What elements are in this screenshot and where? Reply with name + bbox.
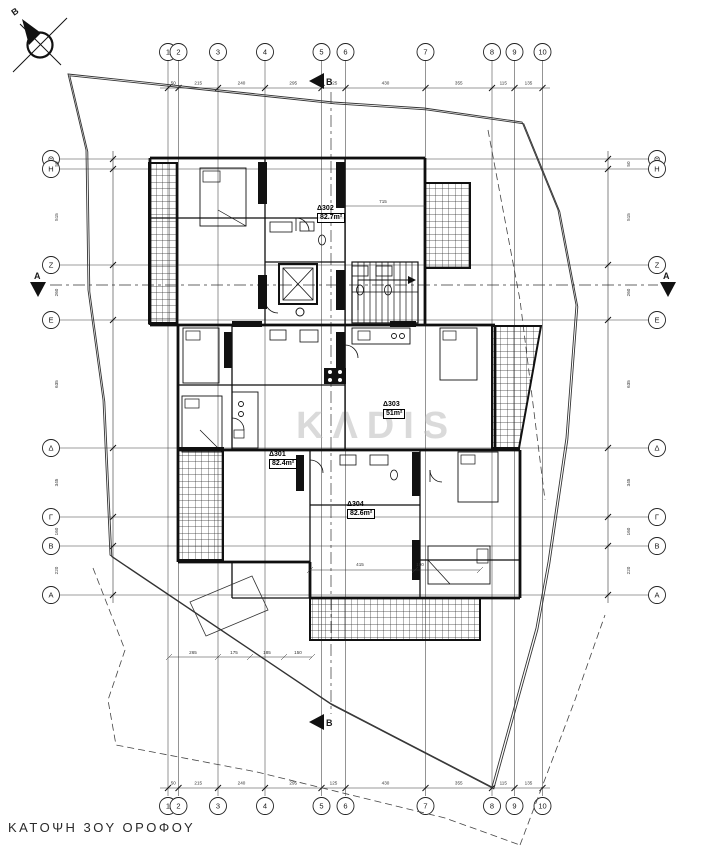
dim-value-right-5: 160: [626, 527, 631, 535]
dim-value-right-0: 50: [626, 161, 631, 167]
grid-bubble-label-bottom-1: 1: [166, 802, 170, 811]
grid-bubble-label-right-Ε: Ε: [654, 316, 659, 325]
grid-bubble-label-bottom-4: 4: [263, 802, 267, 811]
north-label: B: [9, 5, 20, 17]
bed: [182, 396, 222, 452]
dim-value-right-6: 220: [626, 566, 631, 574]
grid-bubble-label-top-5: 5: [319, 48, 323, 57]
grid-bubble-label-bottom-6: 6: [343, 802, 347, 811]
inner-dim-150: 150: [294, 650, 302, 655]
grid-bubble-label-top-4: 4: [263, 48, 267, 57]
section-marker-b-top: B: [309, 73, 333, 89]
apartment-area: 82.6m²: [347, 509, 375, 519]
grid-bubble-label-right-Γ: Γ: [655, 513, 659, 522]
dim-value-bottom-4: 125: [330, 781, 338, 786]
grid-bubble-label-left-Γ: Γ: [49, 513, 53, 522]
dim-value-left-5: 160: [54, 527, 59, 535]
apartment-label-d301: Δ301 82.4m²: [269, 451, 297, 469]
dim-value-left-2: 260: [54, 288, 59, 296]
grid-bubble-label-right-Β: Β: [654, 542, 659, 551]
apartment-label-d302: Δ302 82.7m²: [317, 205, 345, 223]
wall-fill-segments: [224, 162, 420, 580]
wheelchair-symbol: [296, 308, 304, 316]
grid-bubble-label-top-2: 2: [176, 48, 180, 57]
elevator: [279, 264, 317, 304]
dim-value-top-7: 115: [500, 81, 508, 86]
apartment-area: 82.4m²: [269, 459, 297, 469]
balcony-south: [310, 598, 480, 640]
apartment-id: Δ302: [317, 205, 345, 213]
dim-value-right-3: 635: [626, 380, 631, 388]
grid-bubble-label-top-10: 10: [538, 48, 546, 57]
dim-value-top-2: 240: [238, 81, 246, 86]
balcony-west: [149, 163, 177, 323]
grid-bubble-label-top-8: 8: [490, 48, 494, 57]
ramp-outline: [190, 576, 268, 636]
grid-bubble-label-left-Δ: Δ: [48, 444, 53, 453]
grid-bubble-label-top-1: 1: [166, 48, 170, 57]
north-arrow: B: [9, 5, 67, 72]
bed: [428, 546, 490, 584]
watermark: KΛDIS: [296, 405, 457, 447]
dim-value-bottom-5: 430: [382, 781, 390, 786]
inner-dim-715: 715: [379, 199, 387, 204]
grid-bubble-label-bottom-9: 9: [512, 802, 516, 811]
grid-bubble-label-bottom-10: 10: [538, 802, 546, 811]
grid-bubble-label-bottom-7: 7: [423, 802, 427, 811]
floor-plan-drawing: 1122334455667788991010ΘΘΗΗΖΖΕΕΔΔΓΓΒΒΑΑ50…: [0, 0, 724, 858]
section-marker-label: B: [326, 77, 333, 87]
inner-dim-190: 190: [416, 562, 424, 567]
apartment-label-d304: Δ304 82.6m²: [347, 501, 375, 519]
north-arrow-head: [22, 19, 41, 45]
grid-bubble-label-right-Δ: Δ: [654, 444, 659, 453]
dim-value-left-1: 515: [54, 213, 59, 221]
grid-bubble-label-bottom-8: 8: [490, 802, 494, 811]
dim-value-bottom-1: 215: [194, 781, 202, 786]
grid-bubble-label-left-Ζ: Ζ: [49, 261, 54, 270]
grid-bubble-label-top-3: 3: [216, 48, 220, 57]
inner-dim-265: 265: [189, 650, 197, 655]
section-marker-label: A: [663, 271, 670, 281]
apartment-area: 51m²: [383, 409, 405, 419]
dim-value-bottom-7: 115: [500, 781, 508, 786]
dim-value-right-4: 345: [626, 478, 631, 486]
section-marker-label: A: [34, 271, 41, 281]
grid-bubble-label-left-Η: Η: [48, 165, 53, 174]
dim-value-bottom-8: 135: [525, 781, 533, 786]
apartment-area: 82.7m²: [317, 213, 345, 223]
dim-value-top-8: 135: [525, 81, 533, 86]
balcony-southwest: [178, 448, 223, 560]
dim-value-left-0: 50: [54, 161, 59, 167]
inner-dim-185: 185: [263, 650, 271, 655]
bed: [183, 328, 219, 383]
apartment-id: Δ301: [269, 451, 297, 459]
grid-bubble-label-left-Ε: Ε: [48, 316, 53, 325]
dim-value-top-6: 355: [455, 81, 463, 86]
dim-value-top-3: 295: [289, 81, 297, 86]
grid-bubble-label-bottom-2: 2: [176, 802, 180, 811]
grid-bubble-label-top-6: 6: [343, 48, 347, 57]
apartment-label-d303: Δ303 51m²: [383, 401, 405, 419]
balcony-east: [492, 326, 541, 448]
grid-bubble-label-right-Α: Α: [654, 591, 659, 600]
section-marker-a-right: A: [660, 271, 676, 297]
inner-dim-415: 415: [356, 562, 364, 567]
dim-value-left-4: 345: [54, 478, 59, 486]
apartment-id: Δ303: [383, 401, 405, 409]
grid-bubble-label-right-Η: Η: [654, 165, 659, 174]
balcony-northeast: [425, 183, 470, 268]
dim-value-right-2: 260: [626, 288, 631, 296]
dim-value-bottom-0: 50: [171, 781, 177, 786]
floor-plan-canvas: 1122334455667788991010ΘΘΗΗΖΖΕΕΔΔΓΓΒΒΑΑ50…: [0, 0, 724, 858]
section-marker-label: B: [326, 718, 333, 728]
grid-bubble-label-left-Α: Α: [48, 591, 53, 600]
dim-value-top-1: 215: [194, 81, 202, 86]
dim-value-bottom-6: 355: [455, 781, 463, 786]
grid-bubble-label-right-Ζ: Ζ: [655, 261, 660, 270]
bed: [440, 328, 477, 380]
dim-value-bottom-2: 240: [238, 781, 246, 786]
grid-bubble-label-top-9: 9: [512, 48, 516, 57]
dim-value-top-5: 430: [382, 81, 390, 86]
section-marker-a-left: A: [30, 271, 46, 297]
bed: [200, 168, 246, 226]
inner-dim-175: 175: [230, 650, 238, 655]
grid-bubble-label-left-Β: Β: [48, 542, 53, 551]
dim-value-left-3: 635: [54, 380, 59, 388]
grid-bubble-label-bottom-5: 5: [319, 802, 323, 811]
drawing-title: ΚΑΤΟΨΗ 3ΟΥ ΟΡΟΦΟΥ: [8, 820, 195, 835]
grid-bubble-label-bottom-3: 3: [216, 802, 220, 811]
dim-value-right-1: 515: [626, 213, 631, 221]
grid-bubble-label-top-7: 7: [423, 48, 427, 57]
dim-value-left-6: 220: [54, 566, 59, 574]
section-marker-b-bottom: B: [309, 714, 333, 730]
apartment-id: Δ304: [347, 501, 375, 509]
